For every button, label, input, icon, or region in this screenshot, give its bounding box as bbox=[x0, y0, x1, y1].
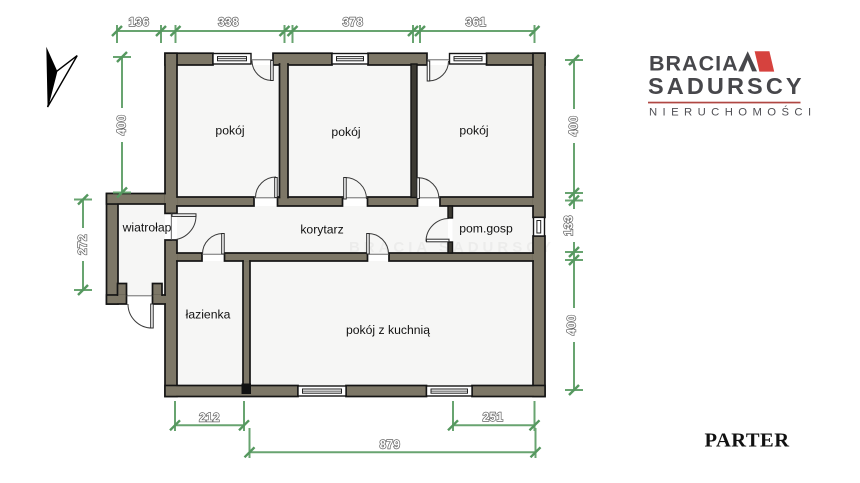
svg-text:łazienka: łazienka bbox=[186, 308, 231, 322]
svg-text:212: 212 bbox=[199, 412, 220, 425]
svg-text:SADURSCY: SADURSCY bbox=[648, 73, 805, 99]
svg-text:272: 272 bbox=[77, 234, 90, 255]
svg-text:pokój: pokój bbox=[215, 124, 244, 138]
svg-text:251: 251 bbox=[483, 411, 504, 424]
svg-text:pom.gosp: pom.gosp bbox=[459, 222, 513, 236]
svg-text:400: 400 bbox=[116, 115, 129, 136]
svg-text:400: 400 bbox=[566, 315, 579, 336]
svg-text:korytarz: korytarz bbox=[300, 223, 343, 237]
svg-text:133: 133 bbox=[563, 215, 576, 236]
svg-text:378: 378 bbox=[343, 16, 364, 29]
svg-text:pokój z kuchnią: pokój z kuchnią bbox=[346, 323, 430, 337]
svg-text:PARTER: PARTER bbox=[704, 430, 789, 452]
svg-text:wiatrołap: wiatrołap bbox=[122, 221, 172, 235]
svg-text:NIERUCHOMOŚCI: NIERUCHOMOŚCI bbox=[649, 106, 816, 119]
svg-text:338: 338 bbox=[218, 16, 239, 29]
svg-text:879: 879 bbox=[380, 439, 401, 452]
svg-text:pokój: pokój bbox=[331, 125, 360, 139]
svg-text:pokój: pokój bbox=[459, 124, 488, 138]
svg-text:136: 136 bbox=[129, 16, 150, 29]
svg-text:361: 361 bbox=[466, 16, 487, 29]
svg-text:400: 400 bbox=[568, 116, 581, 137]
